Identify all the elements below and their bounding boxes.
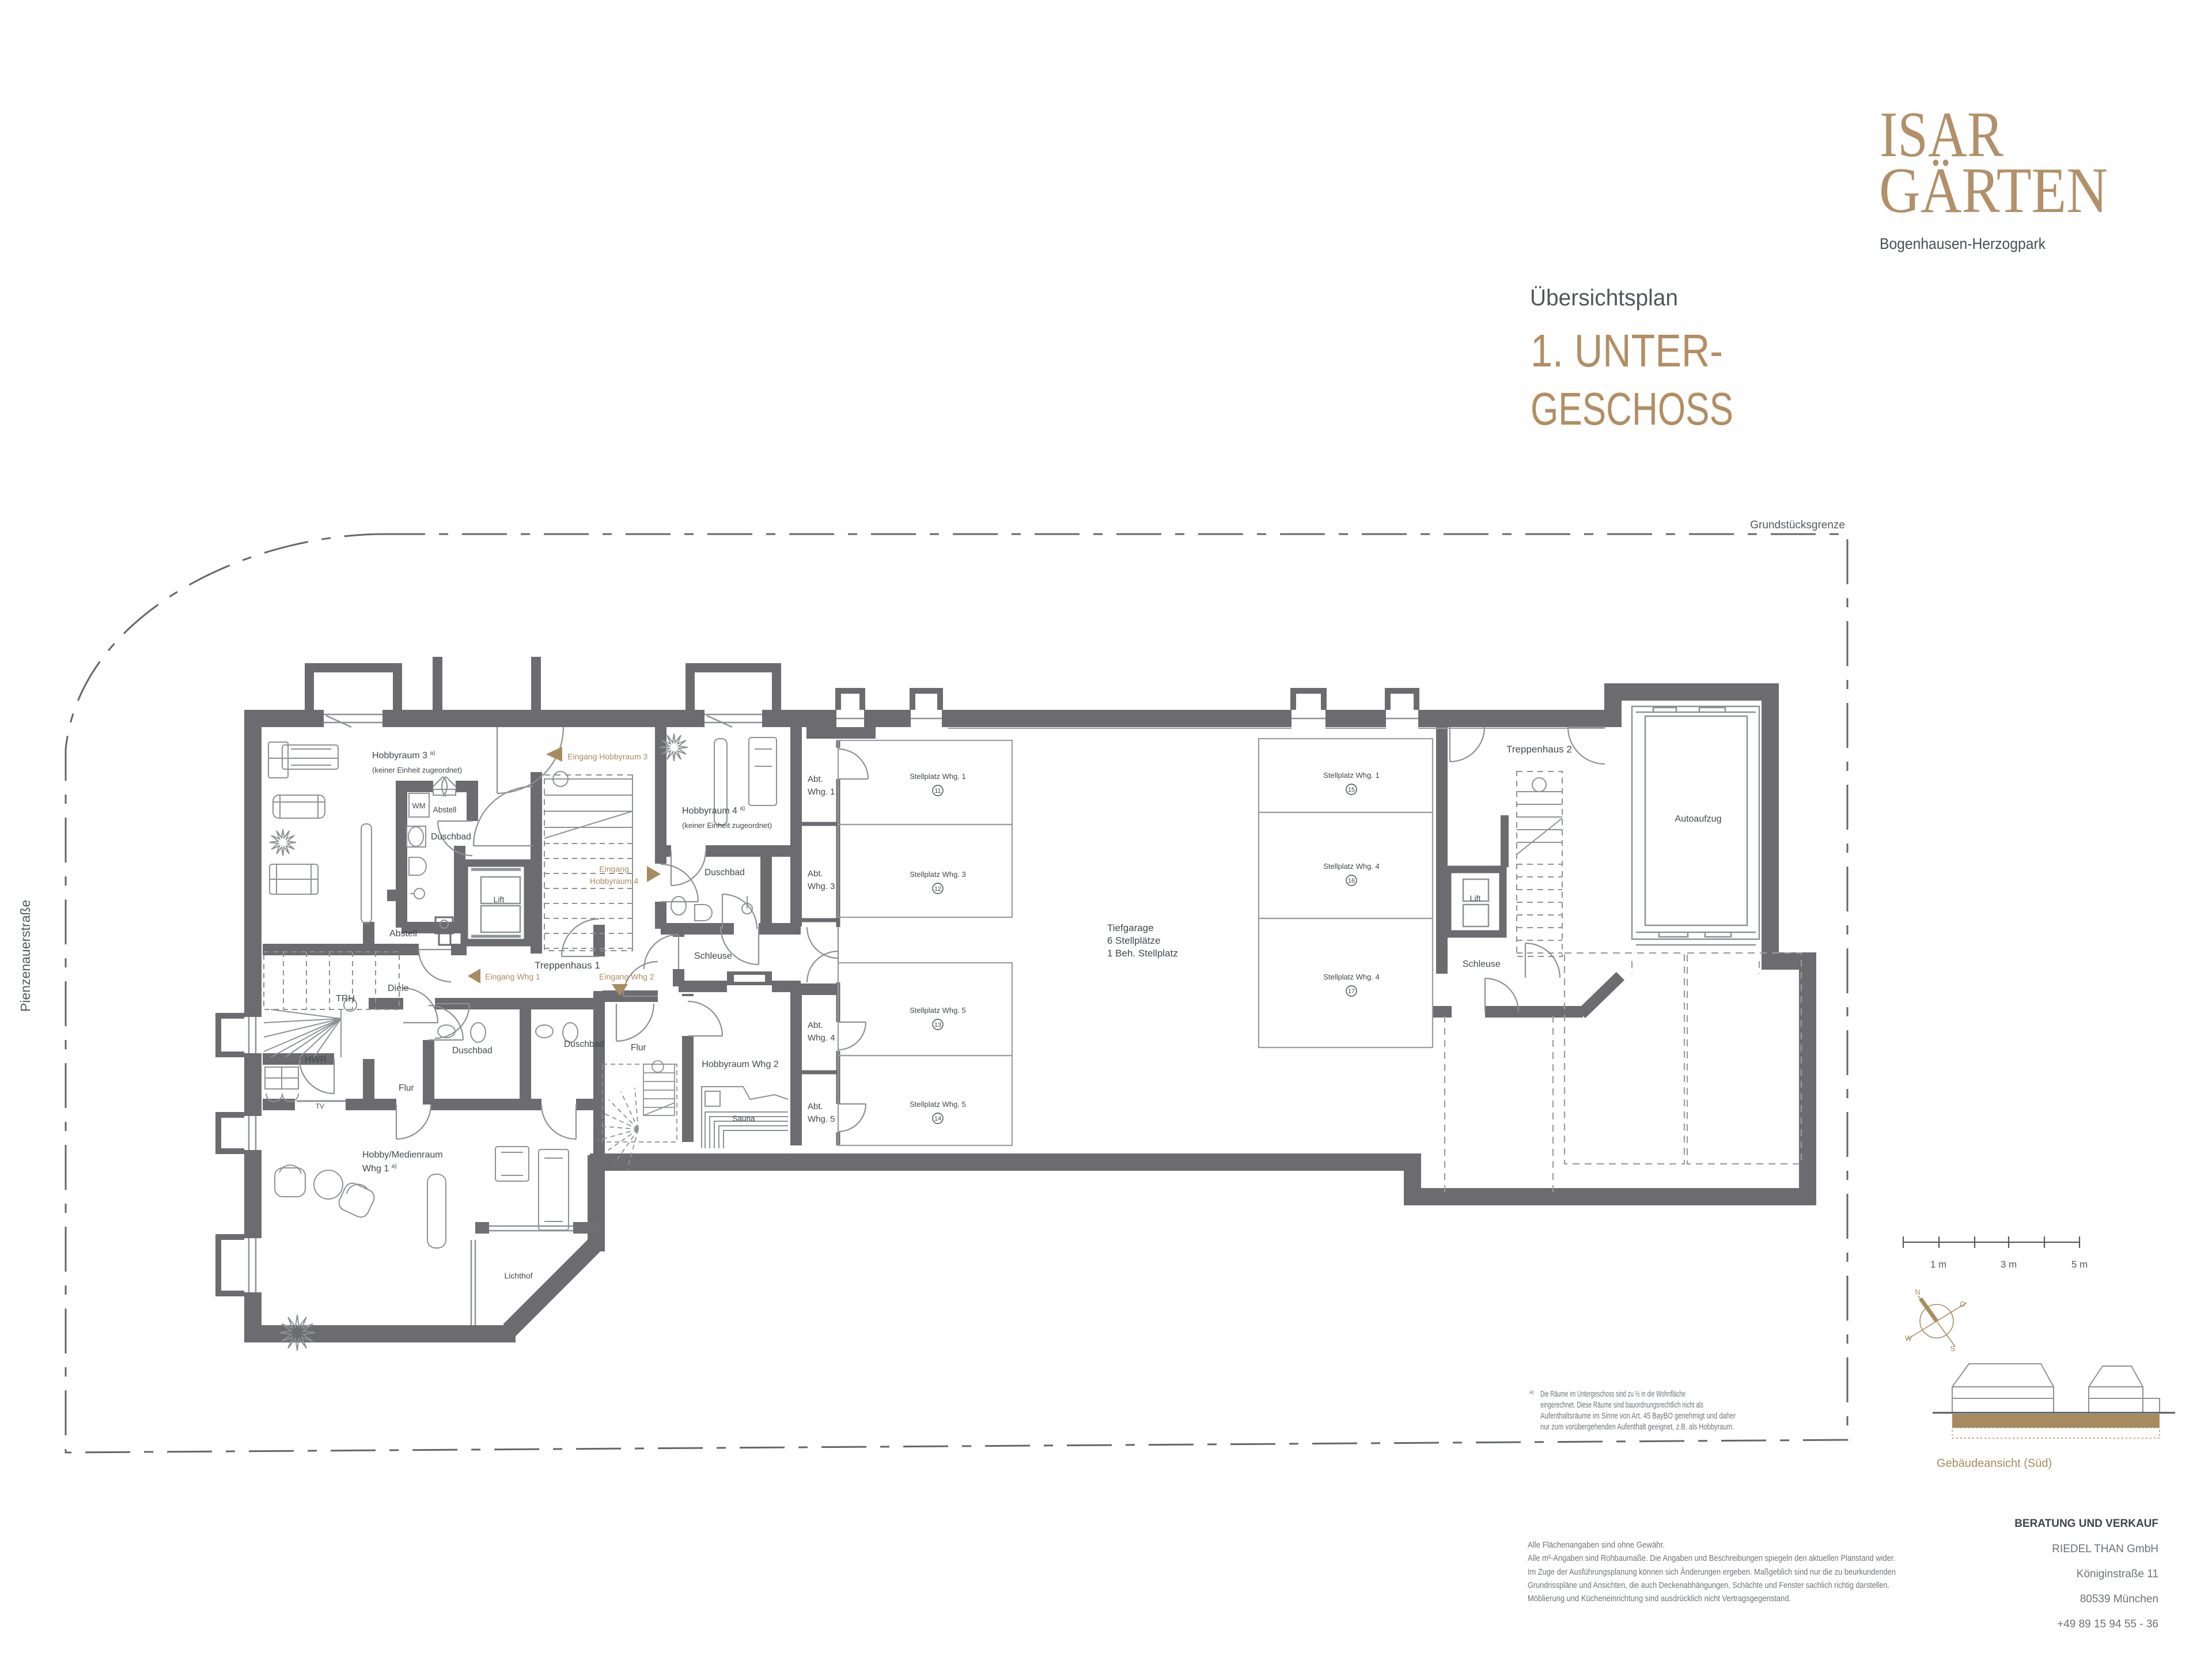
- svg-text:Lift: Lift: [494, 895, 505, 904]
- svg-text:Aufenthaltsräume im Sinne von: Aufenthaltsräume im Sinne von Art. 45 Ba…: [1540, 1411, 1736, 1421]
- svg-text:Abt.: Abt.: [808, 1020, 823, 1030]
- svg-text:Stellplatz Whg. 5: Stellplatz Whg. 5: [910, 1100, 966, 1109]
- svg-text:3 m: 3 m: [2001, 1259, 2017, 1270]
- svg-text:Übersichtsplan: Übersichtsplan: [1530, 285, 1678, 311]
- svg-text:Abt.: Abt.: [808, 774, 823, 784]
- svg-text:Eingang Hobbyraum 3: Eingang Hobbyraum 3: [567, 752, 648, 761]
- svg-text:Grundstücksgrenze: Grundstücksgrenze: [1750, 519, 1845, 531]
- svg-text:Treppenhaus 2: Treppenhaus 2: [1506, 744, 1572, 755]
- svg-text:(keiner Einheit zugeordnet): (keiner Einheit zugeordnet): [372, 766, 462, 774]
- svg-text:Flur: Flur: [631, 1043, 646, 1053]
- svg-text:a)Die Räume im Untergeschoss s: a)Die Räume im Untergeschoss sind zu ½ i…: [1529, 1389, 1685, 1399]
- svg-text:Abstell: Abstell: [389, 929, 417, 939]
- svg-text:N: N: [1915, 1288, 1920, 1296]
- svg-text:Hobbyraum 3 a): Hobbyraum 3 a): [372, 750, 435, 761]
- svg-text:Hobbyraum 4 a): Hobbyraum 4 a): [682, 805, 745, 816]
- svg-text:BERATUNG UND VERKAUF: BERATUNG UND VERKAUF: [2014, 1518, 2158, 1530]
- svg-text:1 m: 1 m: [1930, 1259, 1946, 1270]
- svg-text:TRH: TRH: [336, 994, 355, 1004]
- svg-text:Duschbad: Duschbad: [452, 1046, 493, 1056]
- svg-text:Pienzenauerstraße: Pienzenauerstraße: [18, 900, 33, 1012]
- svg-text:Stellplatz Whg. 5: Stellplatz Whg. 5: [910, 1006, 966, 1015]
- svg-text:Whg. 5: Whg. 5: [808, 1114, 835, 1124]
- svg-text:1 Beh. Stellplatz: 1 Beh. Stellplatz: [1107, 948, 1178, 959]
- svg-text:6 Stellplätze: 6 Stellplätze: [1107, 935, 1161, 946]
- svg-text:+49 89 15 94 55 - 36: +49 89 15 94 55 - 36: [2057, 1618, 2158, 1631]
- svg-text:Whg. 1: Whg. 1: [808, 787, 835, 797]
- svg-text:eingerechnet. Diese Räume sind: eingerechnet. Diese Räume sind bauordnun…: [1540, 1400, 1703, 1410]
- svg-text:Whg. 4: Whg. 4: [808, 1033, 835, 1043]
- svg-text:Gebäudeansicht (Süd): Gebäudeansicht (Süd): [1937, 1457, 2052, 1470]
- svg-text:Stellplatz Whg. 4: Stellplatz Whg. 4: [1323, 973, 1380, 981]
- svg-text:Abt.: Abt.: [808, 1102, 823, 1111]
- svg-text:Duschbad: Duschbad: [564, 1039, 604, 1049]
- svg-text:11: 11: [934, 788, 941, 795]
- svg-text:nur zum vorübergehenden Aufent: nur zum vorübergehenden Aufenthalt geeig…: [1540, 1422, 1734, 1432]
- svg-text:Duschbad: Duschbad: [704, 868, 745, 878]
- svg-text:Eingang: Eingang: [599, 864, 628, 873]
- svg-text:W: W: [1905, 1334, 1912, 1342]
- svg-text:17: 17: [1348, 988, 1355, 995]
- svg-text:S: S: [1950, 1344, 1956, 1353]
- svg-text:Autoaufzug: Autoaufzug: [1675, 814, 1722, 824]
- svg-text:Flur: Flur: [399, 1083, 414, 1093]
- svg-text:Lift: Lift: [1470, 894, 1481, 903]
- svg-text:Hobbyraum Whg 2: Hobbyraum Whg 2: [702, 1060, 778, 1069]
- svg-text:5 m: 5 m: [2071, 1259, 2088, 1270]
- svg-text:Abt.: Abt.: [808, 869, 823, 879]
- svg-text:Möblierung und Kücheneinrichtu: Möblierung und Kücheneinrichtung sind au…: [1528, 1594, 1791, 1603]
- svg-text:Stellplatz Whg. 4: Stellplatz Whg. 4: [1323, 862, 1380, 871]
- svg-text:Im Zuge der Ausführungsplanung: Im Zuge der Ausführungsplanung können si…: [1528, 1567, 1896, 1577]
- svg-text:Eingang Whg 2: Eingang Whg 2: [599, 972, 654, 981]
- svg-text:Tiefgarage: Tiefgarage: [1107, 922, 1154, 933]
- svg-text:GESCHOSS: GESCHOSS: [1531, 383, 1733, 434]
- svg-text:Bogenhausen-Herzogpark: Bogenhausen-Herzogpark: [1880, 235, 2046, 252]
- svg-text:Lichthof: Lichthof: [504, 1271, 532, 1280]
- svg-text:Hobby/Medienraum: Hobby/Medienraum: [362, 1150, 443, 1160]
- svg-text:Treppenhaus 1: Treppenhaus 1: [535, 960, 600, 971]
- svg-text:O: O: [1960, 1300, 1965, 1308]
- svg-text:Diele: Diele: [388, 984, 409, 993]
- svg-text:Alle m²-Angaben sind Rohbaumaß: Alle m²-Angaben sind Rohbaumaße. Die Ang…: [1528, 1553, 1895, 1563]
- svg-text:Whg. 3: Whg. 3: [808, 882, 835, 891]
- svg-text:Duschbad: Duschbad: [431, 832, 471, 842]
- svg-text:Hobbyraum 4: Hobbyraum 4: [590, 876, 638, 886]
- svg-text:12: 12: [934, 886, 941, 892]
- svg-text:Alle Flächenangaben sind ohne: Alle Flächenangaben sind ohne Gewähr.: [1528, 1540, 1665, 1550]
- svg-text:80539 München: 80539 München: [2080, 1593, 2158, 1605]
- svg-text:TV: TV: [316, 1103, 324, 1110]
- svg-text:16: 16: [1348, 878, 1355, 884]
- svg-text:Stellplatz Whg. 1: Stellplatz Whg. 1: [1323, 771, 1380, 780]
- svg-text:Sauna: Sauna: [732, 1114, 755, 1123]
- svg-text:Schleuse: Schleuse: [1463, 959, 1501, 969]
- svg-text:Schleuse: Schleuse: [694, 951, 732, 961]
- svg-text:Whg 1 a): Whg 1 a): [362, 1163, 397, 1174]
- svg-text:15: 15: [1348, 786, 1355, 793]
- svg-text:13: 13: [934, 1022, 941, 1028]
- svg-text:Königinstraße 11: Königinstraße 11: [2077, 1568, 2158, 1580]
- svg-text:RIEDEL THAN GmbH: RIEDEL THAN GmbH: [2052, 1543, 2158, 1555]
- svg-text:1. UNTER-: 1. UNTER-: [1531, 325, 1723, 376]
- svg-text:14: 14: [934, 1115, 941, 1122]
- svg-text:WM: WM: [412, 801, 425, 810]
- svg-text:GÄRTEN: GÄRTEN: [1879, 155, 2108, 226]
- svg-text:(keiner Einheit zugeordnet): (keiner Einheit zugeordnet): [682, 821, 772, 830]
- svg-text:HWR: HWR: [305, 1055, 327, 1065]
- svg-text:Grundrisspläne und Ansichten,: Grundrisspläne und Ansichten, die auch D…: [1528, 1580, 1889, 1590]
- svg-text:Stellplatz Whg. 3: Stellplatz Whg. 3: [910, 870, 966, 879]
- svg-text:Abstell: Abstell: [433, 805, 457, 814]
- svg-text:Stellplatz Whg. 1: Stellplatz Whg. 1: [910, 772, 966, 781]
- svg-text:Eingang Whg 1: Eingang Whg 1: [485, 972, 540, 981]
